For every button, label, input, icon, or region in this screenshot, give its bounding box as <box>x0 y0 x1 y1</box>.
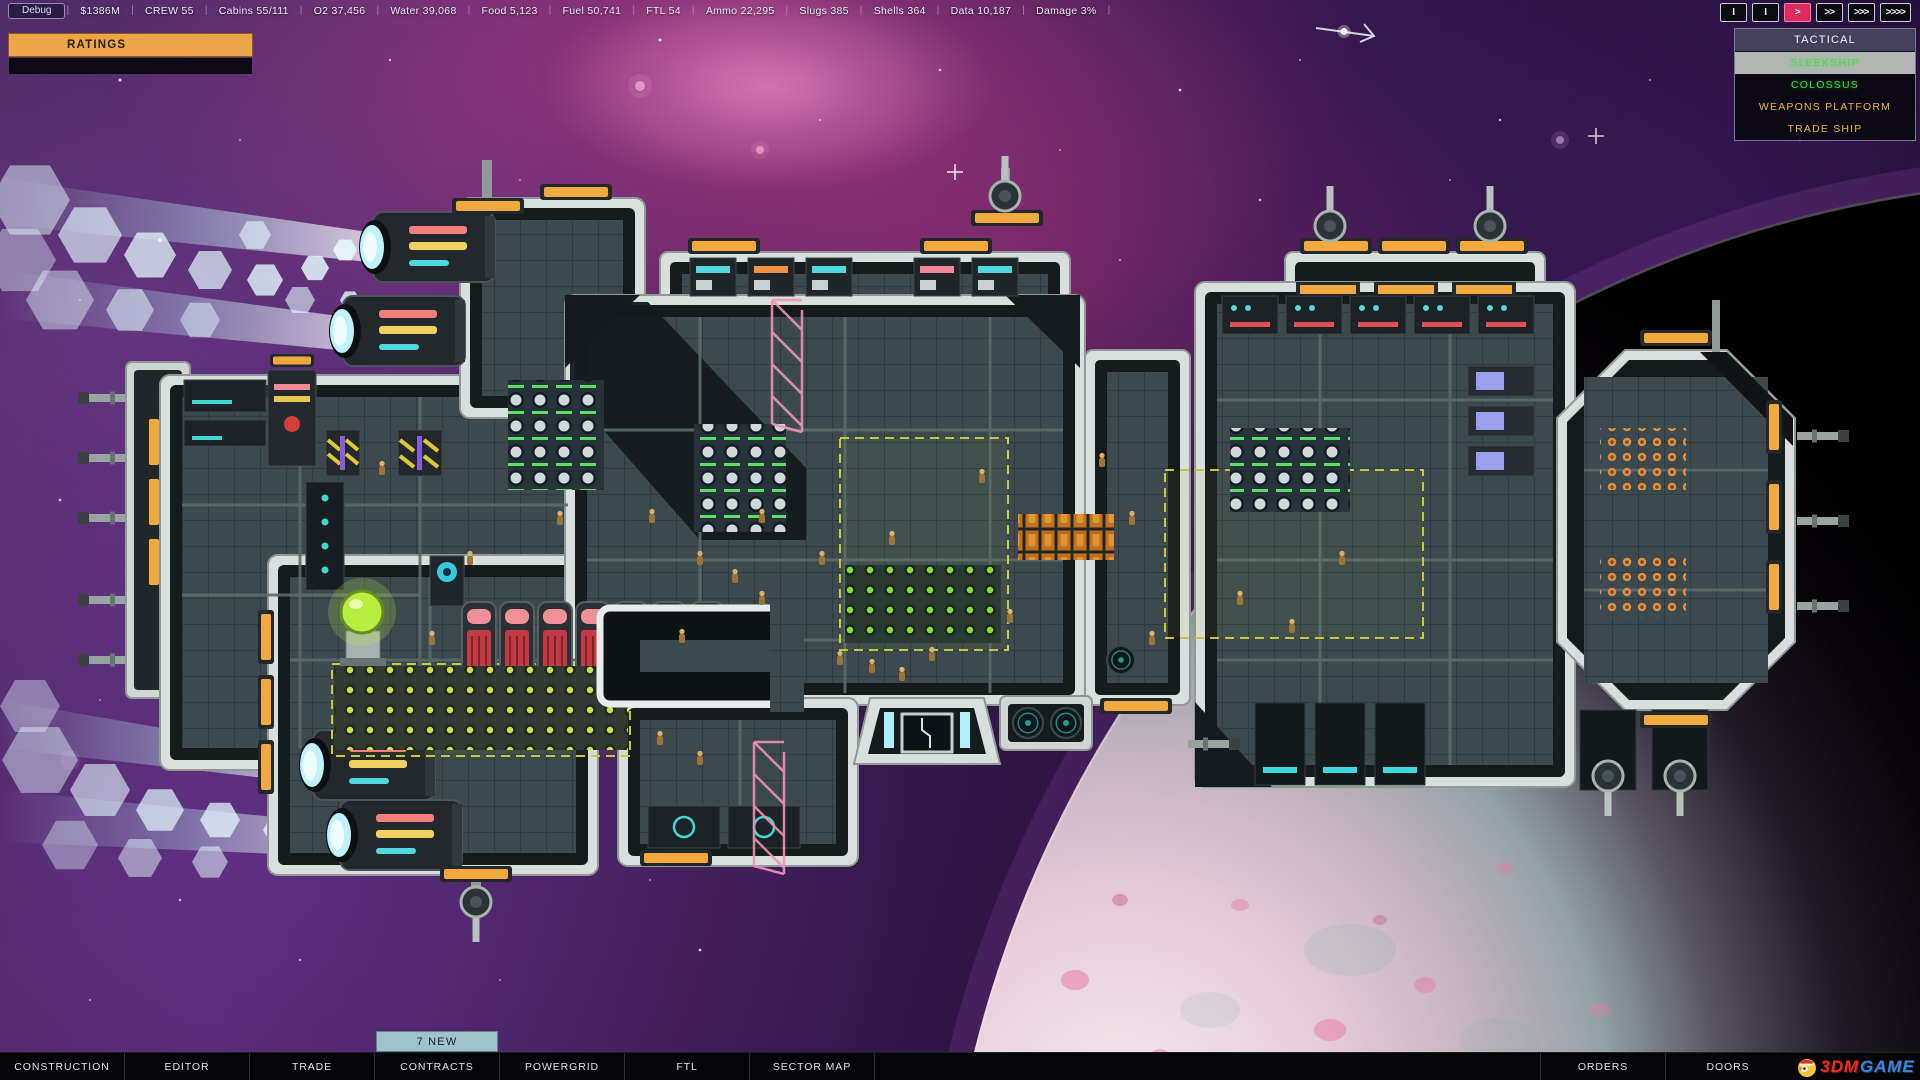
stat-cabins: Cabins 55/111 <box>209 5 299 17</box>
hull-notch <box>600 600 804 712</box>
speed-3x-button[interactable]: >>> <box>1848 3 1875 22</box>
menu-editor[interactable]: EDITOR <box>125 1053 250 1080</box>
watermark: 3DM GAME <box>1790 1053 1920 1080</box>
menu-construction[interactable]: CONSTRUCTION <box>0 1053 125 1080</box>
menu-powergrid[interactable]: POWERGRID <box>500 1053 625 1080</box>
menu-sector-map[interactable]: SECTOR MAP <box>750 1053 875 1080</box>
divider: | <box>131 5 134 16</box>
debug-button[interactable]: Debug <box>8 3 65 19</box>
divider: | <box>300 5 303 16</box>
menu-orders[interactable]: ORDERS <box>1540 1053 1665 1080</box>
tactical-header: TACTICAL <box>1735 29 1915 52</box>
speed-4x-button[interactable]: >>>> <box>1880 3 1911 22</box>
time-speed-controls: I I > >> >>> >>>> <box>1720 3 1911 22</box>
game-world-canvas[interactable] <box>0 0 1920 1080</box>
speed-1x-button[interactable]: > <box>1784 3 1811 22</box>
stat-shells: Shells 364 <box>864 5 936 17</box>
menu-trade[interactable]: TRADE <box>250 1053 375 1080</box>
watermark-text-2: GAME <box>1860 1057 1915 1077</box>
watermark-text-1: 3DM <box>1820 1057 1859 1077</box>
divider: | <box>549 5 552 16</box>
tactical-ship-panel: TACTICAL SLEEKSHIP COLOSSUS WEAPONS PLAT… <box>1734 28 1916 141</box>
divider: | <box>632 5 635 16</box>
menu-ftl[interactable]: FTL <box>625 1053 750 1080</box>
stat-fuel: Fuel 50,741 <box>553 5 632 17</box>
ship-list-item-trade-ship[interactable]: TRADE SHIP <box>1735 118 1915 140</box>
step-button[interactable]: I <box>1752 3 1779 22</box>
stat-crew: CREW 55 <box>135 5 204 17</box>
stat-data: Data 10,187 <box>941 5 1022 17</box>
divider: | <box>66 5 69 16</box>
pause-button[interactable]: I <box>1720 3 1747 22</box>
resource-top-bar: Debug | $1386M | CREW 55 | Cabins 55/111… <box>0 0 1111 21</box>
nav-arrow-icon <box>1312 16 1388 48</box>
divider: | <box>785 5 788 16</box>
stat-food: Food 5,123 <box>472 5 548 17</box>
stat-slugs: Slugs 385 <box>789 5 858 17</box>
divider: | <box>468 5 471 16</box>
divider: | <box>692 5 695 16</box>
stat-money: $1386M <box>70 5 130 17</box>
watermark-bird-icon <box>1795 1055 1819 1079</box>
ratings-collapsed-panel <box>9 58 252 74</box>
bottom-airlock <box>854 698 1000 764</box>
ship-list-item-weapons-platform[interactable]: WEAPONS PLATFORM <box>1735 96 1915 118</box>
divider: | <box>937 5 940 16</box>
divider: | <box>1022 5 1025 16</box>
speed-2x-button[interactable]: >> <box>1816 3 1843 22</box>
stat-damage: Damage 3% <box>1026 5 1106 17</box>
ship-list-item-colossus[interactable]: COLOSSUS <box>1735 74 1915 96</box>
new-notifications-button[interactable]: 7 NEW <box>376 1031 498 1052</box>
divider: | <box>1108 5 1111 16</box>
bottom-bar-spacer <box>875 1053 1540 1080</box>
ratings-button[interactable]: RATINGS <box>8 33 253 57</box>
divider: | <box>376 5 379 16</box>
menu-doors[interactable]: DOORS <box>1665 1053 1790 1080</box>
stat-water: Water 39,068 <box>380 5 466 17</box>
divider: | <box>860 5 863 16</box>
stat-ftl: FTL 54 <box>636 5 691 17</box>
stat-o2: O2 37,456 <box>304 5 376 17</box>
ship-list-item-sleekship[interactable]: SLEEKSHIP <box>1735 52 1915 74</box>
stat-ammo: Ammo 22,295 <box>696 5 785 17</box>
bottom-menu-bar: CONSTRUCTION EDITOR TRADE CONTRACTS POWE… <box>0 1052 1920 1080</box>
menu-contracts[interactable]: CONTRACTS <box>375 1053 500 1080</box>
divider: | <box>205 5 208 16</box>
